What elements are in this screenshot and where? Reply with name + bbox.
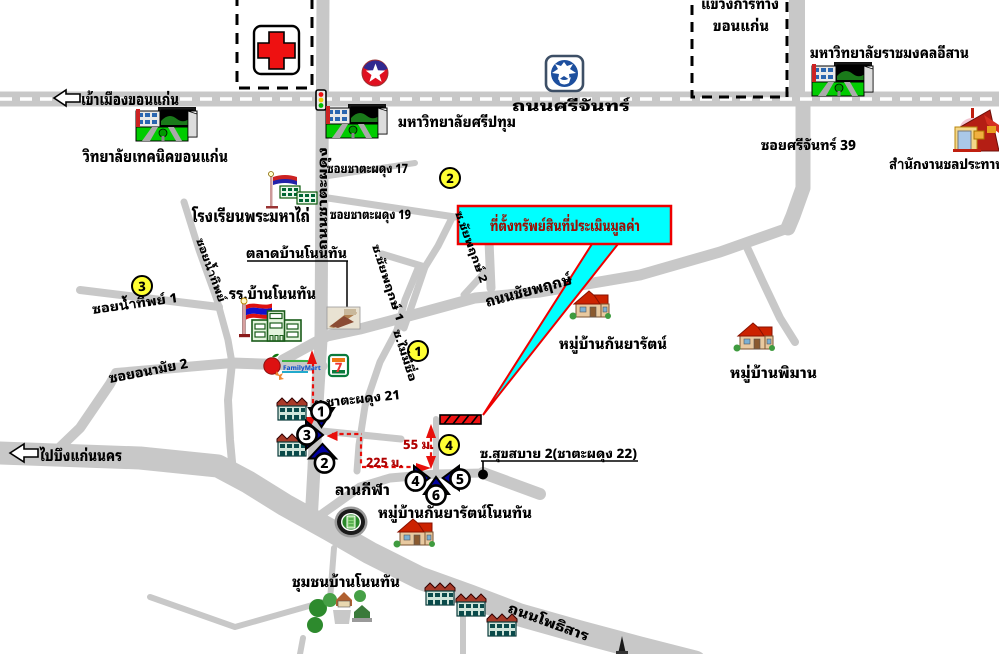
svg-text:ซอยชาตะผดุง 17: ซอยชาตะผดุง 17 — [327, 157, 408, 178]
svg-text:วิทยาลัยเทคนิคขอนแก่น: วิทยาลัยเทคนิคขอนแก่น — [82, 142, 228, 168]
svg-text:หมู่บ้านกันยารัตน์โนนทัน: หมู่บ้านกันยารัตน์โนนทัน — [378, 500, 532, 524]
svg-text:4: 4 — [445, 434, 453, 455]
svg-text:3: 3 — [138, 275, 146, 296]
svg-text:5: 5 — [456, 466, 464, 489]
svg-text:ตลาดบ้านโนนทัน: ตลาดบ้านโนนทัน — [246, 240, 347, 263]
svg-text:ซอยศรีจันทร์ 39: ซอยศรีจันทร์ 39 — [761, 132, 856, 155]
svg-text:สำนักงานชลประทาน: สำนักงานชลประทาน — [889, 151, 999, 174]
svg-text:ซอยชาตะผดุง 19: ซอยชาตะผดุง 19 — [330, 203, 411, 224]
svg-text:หมู่บ้านพิมาน: หมู่บ้านพิมาน — [730, 360, 817, 384]
svg-text:มหาวิทยาลัยราชมงคลอีสาน: มหาวิทยาลัยราชมงคลอีสาน — [810, 40, 969, 64]
svg-text:หมู่บ้านกันยารัตน์: หมู่บ้านกันยารัตน์ — [559, 331, 667, 355]
svg-text:2: 2 — [320, 450, 328, 473]
svg-text:มหาวิทยาลัยศรีปทุม: มหาวิทยาลัยศรีปทุม — [398, 109, 516, 133]
svg-text:1: 1 — [317, 399, 325, 422]
svg-text:7: 7 — [335, 356, 343, 377]
svg-text:2: 2 — [446, 167, 454, 188]
svg-text:55 ม.: 55 ม. — [403, 433, 434, 454]
svg-text:4: 4 — [411, 468, 419, 491]
svg-text:ที่ตั้งทรัพย์สินที่ประเมินมูลค: ที่ตั้งทรัพย์สินที่ประเมินมูลค่า — [490, 213, 640, 237]
svg-text:ถนนชาตะผดุง: ถนนชาตะผดุง — [311, 147, 332, 250]
svg-text:เข้าเมืองขอนแก่น: เข้าเมืองขอนแก่น — [81, 85, 179, 111]
svg-text:3: 3 — [303, 422, 311, 445]
svg-text:225 ม.: 225 ม. — [366, 451, 403, 472]
svg-text:ขอนแก่น: ขอนแก่น — [713, 13, 769, 37]
svg-text:ถนนศรีจันทร์: ถนนศรีจันทร์ — [512, 93, 631, 117]
svg-text:ไปบึงแก่นนคร: ไปบึงแก่นนคร — [39, 443, 122, 467]
svg-text:ซ.สุขสบาย 2(ชาตะผดุง 22): ซ.สุขสบาย 2(ชาตะผดุง 22) — [480, 442, 637, 463]
svg-text:โรงเรียนพระมหาไถ่: โรงเรียนพระมหาไถ่ — [191, 201, 310, 228]
svg-text:ลานกีฬา: ลานกีฬา — [335, 477, 390, 501]
svg-text:ชุมชนบ้านโนนทัน: ชุมชนบ้านโนนทัน — [292, 569, 400, 593]
